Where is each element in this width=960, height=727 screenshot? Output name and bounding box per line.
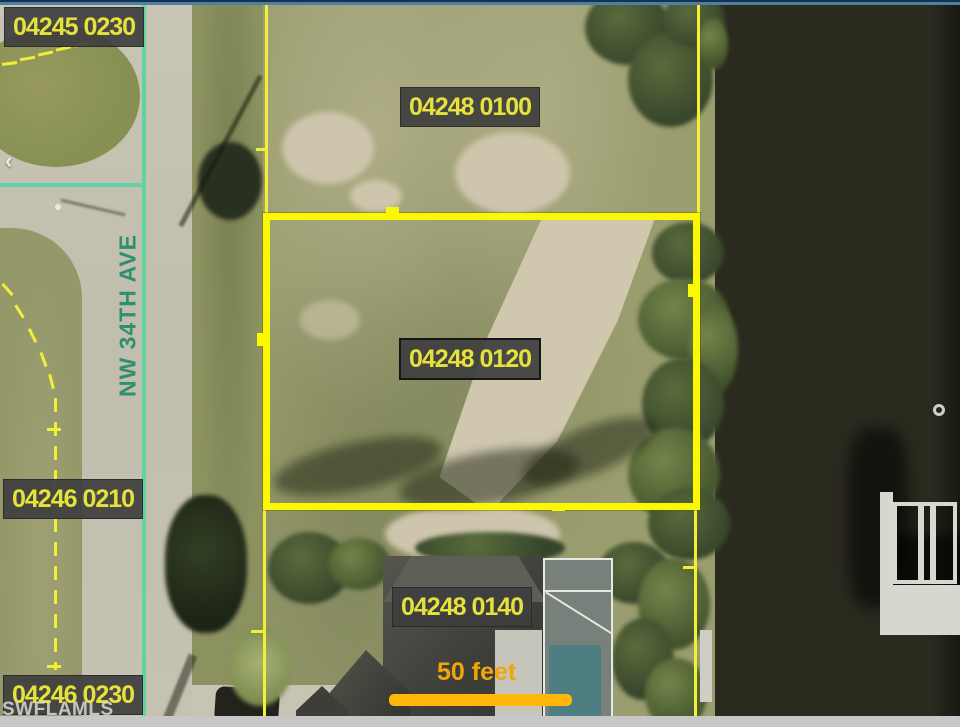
road-centerline xyxy=(142,0,146,727)
parcel-boundary-tick xyxy=(683,566,695,569)
boundary-notch xyxy=(386,207,399,214)
boat-lift-frame xyxy=(893,502,957,584)
utility-pole xyxy=(55,204,61,210)
parcel-boundary-tick xyxy=(251,630,263,633)
top-border-bar-accent xyxy=(0,2,960,5)
boundary-notch xyxy=(257,333,264,346)
street-name-label: NW 34TH AVE xyxy=(115,206,142,426)
scale-text: 50 feet xyxy=(437,658,516,687)
parcel-boundary-dashed-line xyxy=(54,398,57,670)
side-road-centerline xyxy=(0,183,146,187)
boundary-notch xyxy=(552,503,565,511)
gis-aerial-map-view: 04245 0230 04248 0100 04248 0120 04246 0… xyxy=(0,0,960,727)
parcel-boundary-tick xyxy=(47,665,61,668)
parcel-boundary-tick xyxy=(256,148,265,151)
scale-bar xyxy=(389,694,572,706)
parcel-boundary-line xyxy=(697,0,700,213)
swimming-pool xyxy=(549,645,601,719)
parcel-label: 04246 0210 xyxy=(3,479,143,519)
palm-tree-canopy xyxy=(228,628,292,706)
map-canvas[interactable]: 04245 0230 04248 0100 04248 0120 04246 0… xyxy=(0,0,960,727)
parcel-label: 04248 0140 xyxy=(392,587,532,627)
sand-patch xyxy=(455,132,570,214)
parcel-boundary-line xyxy=(265,0,268,213)
seawall-cap xyxy=(700,630,712,702)
parcel-boundary-line xyxy=(263,508,266,716)
boat-lift-beam xyxy=(930,502,936,584)
tree-canopy xyxy=(328,538,390,590)
tree-shadow-blob xyxy=(198,142,262,220)
parcel-boundary-line xyxy=(694,508,697,716)
tree-canopy xyxy=(698,18,728,70)
sand-patch xyxy=(282,112,374,184)
parcel-label: 04245 0230 xyxy=(4,7,144,47)
mooring-buoy xyxy=(933,404,945,416)
palm-tree-canopy xyxy=(165,495,247,633)
enclosure-frame xyxy=(545,590,613,592)
bottom-border-bar xyxy=(0,716,960,727)
parcel-boundary-tick xyxy=(47,428,61,431)
parcel-label-highlighted: 04248 0120 xyxy=(399,338,541,380)
dock-platform xyxy=(905,598,960,632)
boundary-notch xyxy=(688,284,695,297)
boat-lift-beam xyxy=(918,502,924,584)
parcel-label: 04248 0100 xyxy=(400,87,540,127)
roadside-grass xyxy=(0,228,82,727)
back-arrow-icon[interactable]: ‹ xyxy=(5,148,12,174)
